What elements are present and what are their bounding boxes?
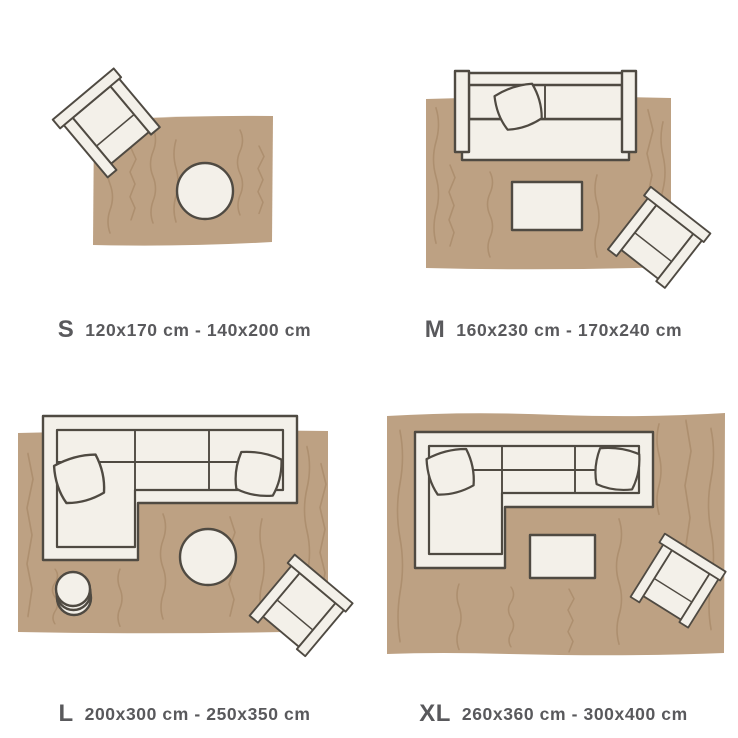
size-range: 200x300 cm - 250x350 cm	[85, 704, 311, 724]
side-table-icon	[56, 572, 91, 615]
size-range: 260x360 cm - 300x400 cm	[462, 704, 688, 724]
size-letter: M	[425, 316, 446, 343]
size-panel-xl: XL260x360 cm - 300x400 cm	[369, 369, 738, 738]
coffee-table-icon	[512, 182, 582, 230]
rug-size-guide: S120x170 cm - 140x200 cm	[0, 0, 738, 738]
size-letter: L	[58, 700, 73, 727]
size-caption-xl: XL260x360 cm - 300x400 cm	[369, 700, 738, 728]
size-range: 160x230 cm - 170x240 cm	[456, 320, 682, 340]
room-illustration-xl	[369, 369, 738, 669]
coffee-table-icon	[530, 535, 595, 578]
pillow-icon	[592, 445, 641, 493]
sofa-icon	[455, 71, 636, 160]
size-panel-l: L200x300 cm - 250x350 cm	[0, 369, 369, 738]
size-caption-s: S120x170 cm - 140x200 cm	[0, 316, 369, 344]
size-caption-m: M160x230 cm - 170x240 cm	[369, 316, 738, 344]
size-panel-s: S120x170 cm - 140x200 cm	[0, 0, 369, 369]
size-panel-m: M160x230 cm - 170x240 cm	[369, 0, 738, 369]
round-ottoman-icon	[180, 529, 236, 585]
size-letter: S	[58, 316, 75, 343]
round-ottoman-icon	[177, 163, 233, 219]
room-illustration-m	[369, 0, 738, 300]
room-illustration-l	[0, 369, 369, 669]
size-range: 120x170 cm - 140x200 cm	[85, 320, 311, 340]
size-letter: XL	[419, 700, 451, 727]
size-caption-l: L200x300 cm - 250x350 cm	[0, 700, 369, 728]
room-illustration-s	[0, 0, 369, 300]
